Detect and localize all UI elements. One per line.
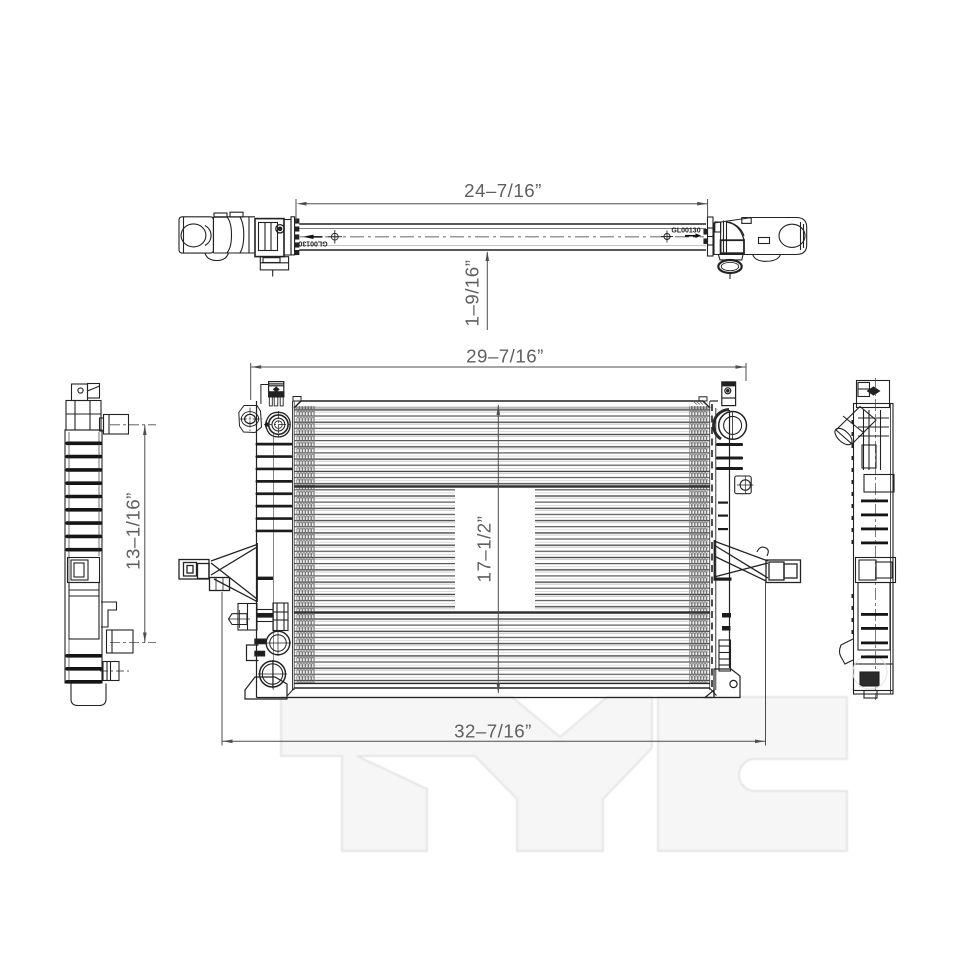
- svg-text:1–9/16”: 1–9/16”: [462, 260, 483, 327]
- svg-text:13–1/16”: 13–1/16”: [123, 492, 144, 570]
- svg-text:GL00130: GL00130: [298, 240, 327, 247]
- svg-text:17–1/2”: 17–1/2”: [474, 516, 495, 583]
- svg-text:32–7/16”: 32–7/16”: [454, 721, 532, 742]
- svg-text:24–7/16”: 24–7/16”: [464, 180, 542, 201]
- svg-text:29–7/16”: 29–7/16”: [466, 345, 544, 366]
- svg-text:GL00130: GL00130: [671, 227, 700, 234]
